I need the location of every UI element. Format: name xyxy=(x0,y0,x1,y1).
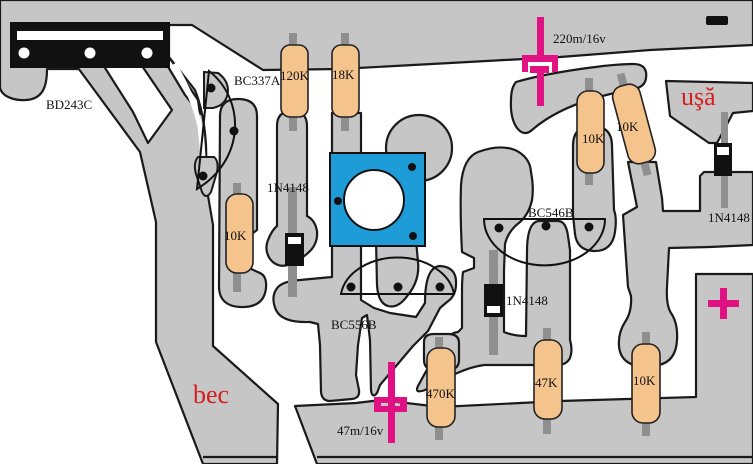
svg-text:uşă: uşă xyxy=(681,82,716,111)
svg-text:47m/16v: 47m/16v xyxy=(337,423,384,438)
svg-text:10K: 10K xyxy=(582,131,605,146)
svg-text:BC556B: BC556B xyxy=(331,317,377,332)
svg-text:18K: 18K xyxy=(332,67,355,82)
svg-text:1N4148: 1N4148 xyxy=(506,293,548,308)
svg-text:470K: 470K xyxy=(426,386,456,401)
svg-text:1N4148: 1N4148 xyxy=(708,210,750,225)
svg-text:10K: 10K xyxy=(616,119,639,134)
svg-text:10K: 10K xyxy=(633,373,656,388)
svg-text:220m/16v: 220m/16v xyxy=(553,31,606,46)
svg-text:bec: bec xyxy=(193,380,229,409)
svg-text:BC546B: BC546B xyxy=(528,205,574,220)
svg-text:BD243C: BD243C xyxy=(46,97,92,112)
svg-text:BC337A: BC337A xyxy=(234,73,281,88)
svg-text:1N4148: 1N4148 xyxy=(267,180,309,195)
svg-text:47K: 47K xyxy=(535,375,558,390)
svg-text:120K: 120K xyxy=(280,68,310,83)
svg-text:10K: 10K xyxy=(224,228,247,243)
